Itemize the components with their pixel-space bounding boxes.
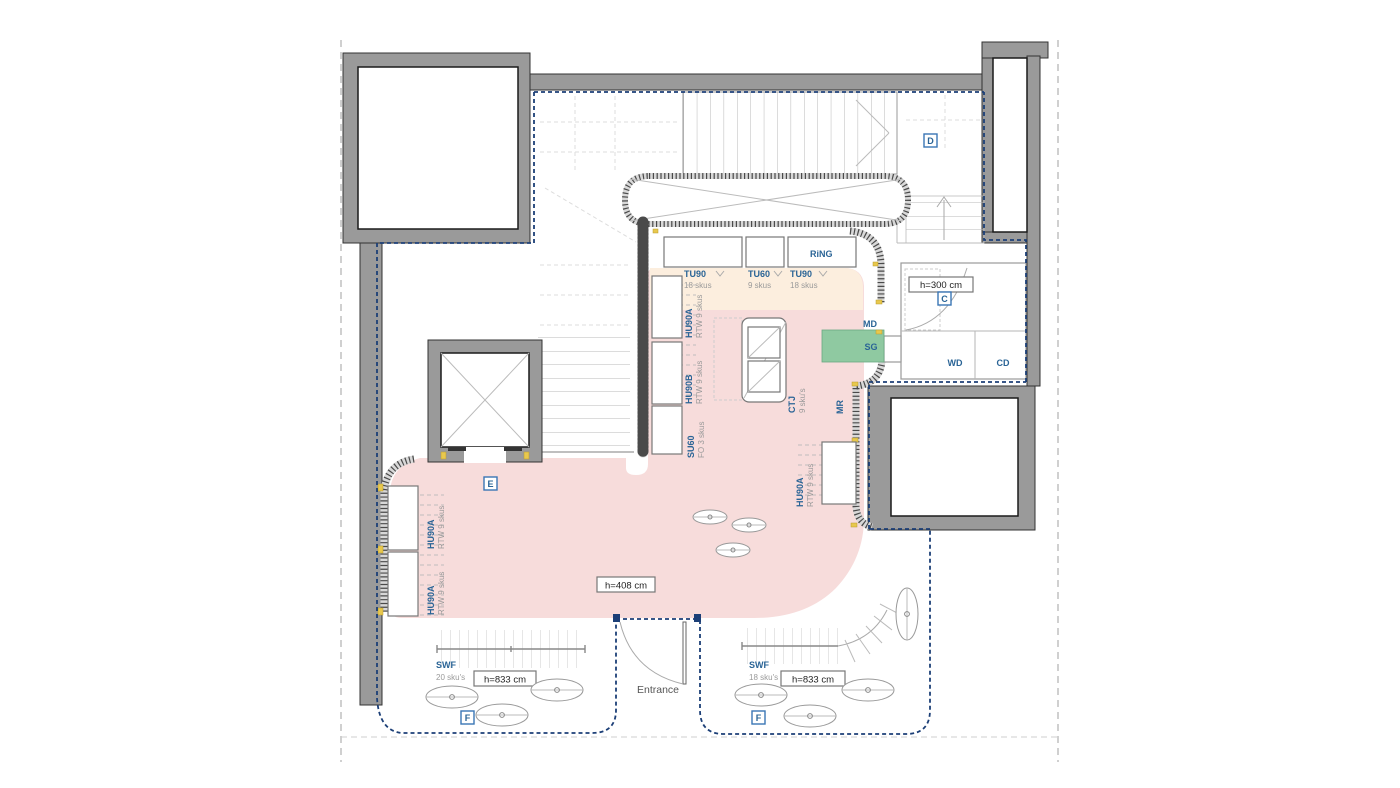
core-bottom-right-room xyxy=(891,398,1018,516)
floor-plan: h=300 cm WD CD SG MD RiNG TU90 18 skus T… xyxy=(0,0,1400,788)
sales-floor-height: h=408 cm xyxy=(597,577,655,592)
count-su60: FO 3 skus xyxy=(697,422,706,458)
shelf-hu90a-left-upper xyxy=(388,486,418,550)
stairs-left xyxy=(538,330,634,452)
label-swf-left: SWF xyxy=(436,660,456,670)
count-hu90a-left-lower: RTW 9 skus xyxy=(437,572,446,615)
shelf-su60 xyxy=(652,406,682,454)
entrance: Entrance xyxy=(613,614,701,696)
shelf-hu90a-left-lower xyxy=(388,552,418,616)
wall-niche xyxy=(884,336,901,362)
label-cd: CD xyxy=(997,358,1010,368)
zone-marker-f-left-letter: F xyxy=(465,713,471,723)
label-hu90a-left-upper: HU90A xyxy=(426,519,436,549)
label-mr: MR xyxy=(835,400,845,414)
sg-cabinet: SG xyxy=(822,330,884,362)
room-c: h=300 cm WD CD xyxy=(884,263,1026,379)
wall-top-band xyxy=(530,74,982,90)
wall-right-bar xyxy=(1027,56,1040,386)
zone-marker-e: E xyxy=(484,477,497,490)
count-hu90b-back: RTW 9 skus xyxy=(695,361,704,404)
zone-marker-f-left: F xyxy=(461,711,474,724)
label-hu90a-right: HU90A xyxy=(795,477,805,507)
shelf-hu90b-back xyxy=(652,342,682,404)
label-sg: SG xyxy=(864,342,877,352)
label-wd: WD xyxy=(948,358,963,368)
zone-marker-e-letter: E xyxy=(487,479,493,489)
count-ctj: 9 sku's xyxy=(798,388,807,413)
entrance-label: Entrance xyxy=(637,684,679,696)
zone-marker-d: D xyxy=(924,134,937,147)
count-swf-right: 18 sku's xyxy=(749,673,778,682)
label-md: MD xyxy=(863,319,877,329)
zone-marker-d-letter: D xyxy=(927,136,934,146)
label-tu90-right: TU90 xyxy=(790,269,812,279)
zone-marker-c: C xyxy=(938,292,951,305)
count-hu90a-right: RTW 9 skus xyxy=(806,464,815,507)
zone-marker-f-right-letter: F xyxy=(756,713,762,723)
count-tu90-right: 18 skus xyxy=(790,281,818,290)
shop-window-left: SWF 20 sku's h=833 cm xyxy=(436,630,585,686)
label-su60: SU60 xyxy=(686,435,696,458)
label-ctj: CTJ xyxy=(787,396,797,413)
zone-marker-f-right: F xyxy=(752,711,765,724)
label-hu90a-left-lower: HU90A xyxy=(426,585,436,615)
display-box-tu90-left xyxy=(664,237,742,267)
label-hu90b-back: HU90B xyxy=(684,374,694,404)
label-swf-right: SWF xyxy=(749,660,769,670)
height-tag-room-c: h=300 cm xyxy=(920,280,962,291)
label-hu90a-back: HU90A xyxy=(684,308,694,338)
count-tu60: 9 skus xyxy=(748,281,771,290)
shelf-hu90a-back xyxy=(652,276,682,338)
count-swf-left: 20 sku's xyxy=(436,673,465,682)
height-tag-window-right: h=833 cm xyxy=(792,675,834,686)
label-ring: RiNG xyxy=(810,249,833,259)
display-box-tu60 xyxy=(746,237,784,267)
stairs-upper xyxy=(683,92,897,174)
count-hu90a-back: RTW 9 skus xyxy=(695,295,704,338)
elevator xyxy=(428,340,542,463)
shelf-hu90a-right xyxy=(822,442,856,504)
label-tu60: TU60 xyxy=(748,269,770,279)
wall-left-leg xyxy=(360,243,382,705)
core-top-right-room xyxy=(993,58,1027,232)
entrance-door-leaf xyxy=(683,622,686,684)
floor-plan-page: h=300 cm WD CD SG MD RiNG TU90 18 skus T… xyxy=(0,0,1400,788)
escalator-void xyxy=(625,176,908,224)
count-hu90a-left-upper: RTW 9 skus xyxy=(437,506,446,549)
height-tag-sales: h=408 cm xyxy=(605,581,647,592)
entrance-door-swing xyxy=(620,622,683,684)
core-top-right-bottom xyxy=(982,232,1027,243)
height-tag-window-left: h=833 cm xyxy=(484,675,526,686)
zone-marker-c-letter: C xyxy=(941,294,948,304)
core-top-left-room xyxy=(358,67,518,229)
